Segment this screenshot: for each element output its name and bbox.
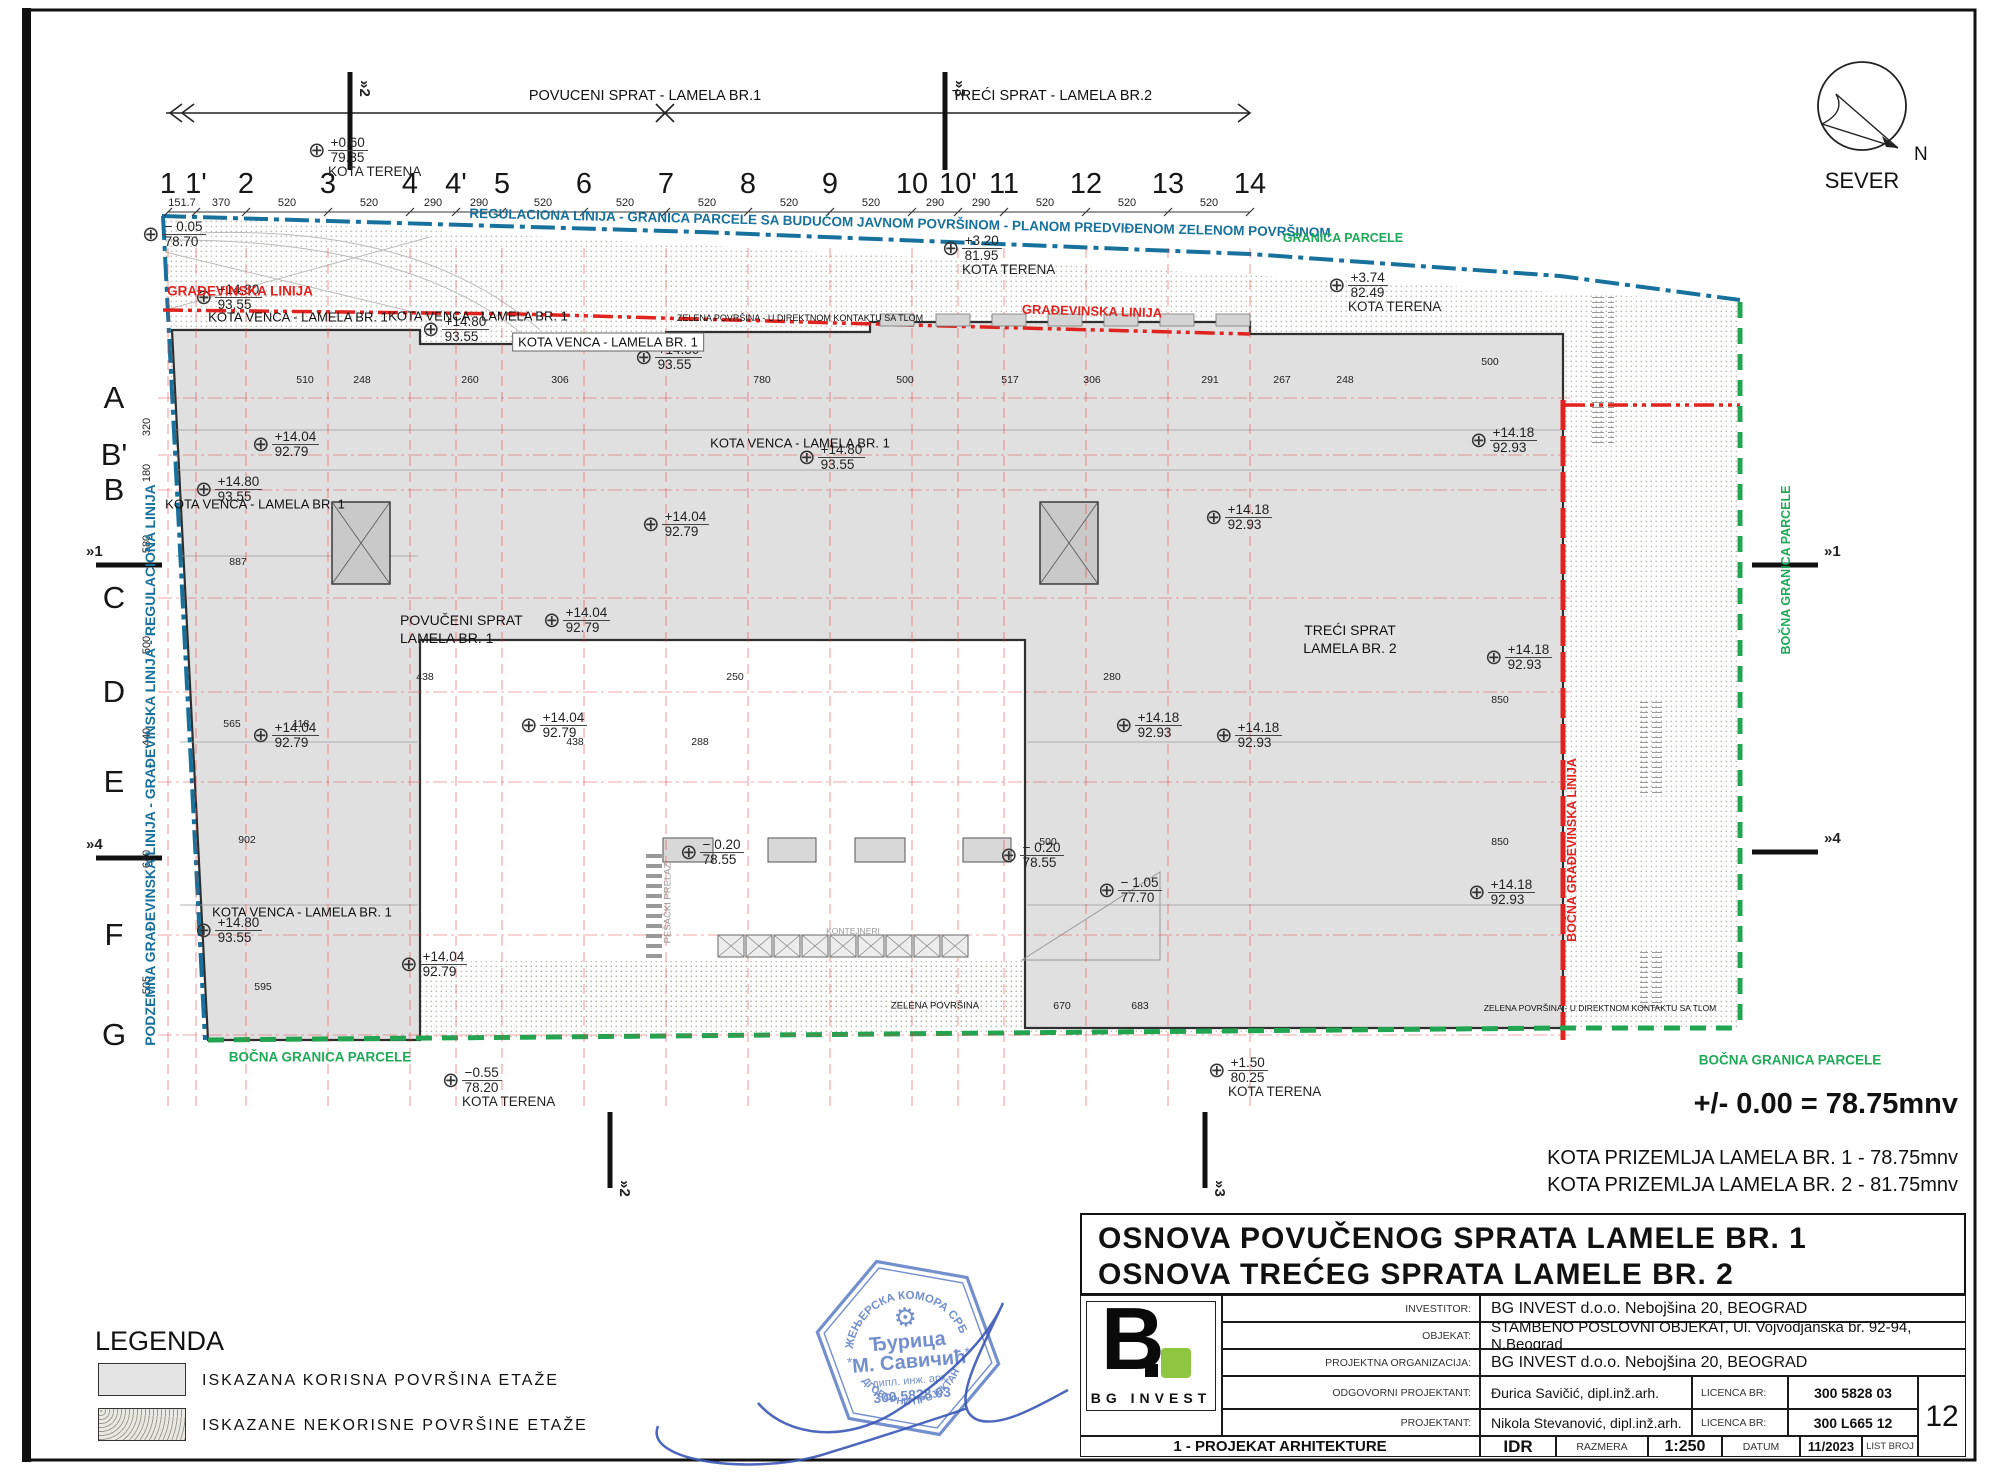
elevation-marker: ⊕+1.5080.25KOTA TERENA	[1208, 1056, 1321, 1099]
bocna-granica-parcele-bottom-right: BOČNA GRANICA PARCELE	[1699, 1053, 1882, 1068]
elevation-symbol-icon: ⊕	[1468, 883, 1486, 903]
row-label-projektant: PROJEKTANT:	[1222, 1409, 1480, 1436]
zelena-povrsina-kontakt-top: ZELENA POVRŠINA - U DIREKTNOM KONTAKTU S…	[677, 313, 923, 323]
dim-label: 288	[691, 736, 709, 748]
grid-row-dim: 180	[141, 463, 153, 481]
grid-row-letter: F	[105, 917, 124, 953]
grid-row-letter: G	[102, 1017, 126, 1053]
grid-column-number: 13	[1152, 168, 1184, 201]
row-label-odgovorni-projektant: ODGOVORNI PROJEKTANT:	[1222, 1376, 1480, 1409]
dim-label: 438	[416, 671, 434, 683]
grid-column-number: 1'	[185, 168, 207, 201]
zelena-povrsina-label: ZELENA POVRŠINA	[891, 1001, 979, 1012]
section-mark-label: »3	[951, 80, 968, 97]
elevation-symbol-icon: ⊕	[308, 141, 326, 161]
elevation-symbol-icon: ⊕	[1098, 881, 1116, 901]
elevation-symbol-icon: ⊕	[1215, 726, 1233, 746]
bg-invest-logo: B BG INVEST	[1086, 1301, 1216, 1411]
grid-column-dim: 520	[360, 197, 378, 209]
elevation-marker: ⊕+14.0492.79	[252, 430, 319, 459]
elevation-marker: ⊕+14.0492.79	[400, 950, 467, 979]
legend-swatch-nekorisna	[98, 1408, 186, 1441]
dim-label: 683	[1131, 1000, 1149, 1012]
kota-venca-label-2: KOTA VENCA - LAMELA BR. 1	[388, 309, 568, 324]
section-mark-label: »1	[1824, 543, 1841, 560]
grid-column-dim: 520	[278, 197, 296, 209]
grid-column-number: 8	[740, 168, 756, 201]
kota-venca-label-4: KOTA VENCA - LAMELA BR. 1	[710, 436, 890, 451]
bocna-gradjevinska-linija-vert: BOČNA GRAĐEVINSKA LINIJA	[1565, 758, 1579, 942]
razmera-value-cell: 1:250	[1648, 1436, 1722, 1457]
elevation-symbol-icon: ⊕	[642, 515, 660, 535]
section-mark-label: »4	[1824, 830, 1841, 847]
regulaciona-linija-label: REGULACIONA LINIJA - GRANICA PARCELE SA …	[469, 206, 1331, 241]
row-value-projektna-organizacija: BG INVEST d.o.o. Nebojšina 20, BEOGRAD	[1480, 1349, 1966, 1376]
gradjevinska-linija-label-left: GRAĐEVINSKA LINIJA	[167, 284, 313, 299]
elevation-symbol-icon: ⊕	[942, 239, 960, 259]
kota-venca-label-5: KOTA VENCA - LAMELA BR. 1	[165, 497, 345, 512]
licence-label-2: LICENCA BR:	[1692, 1409, 1788, 1436]
elevation-marker: ⊕− 0.0578.70	[142, 220, 206, 249]
grid-column-dim: 520	[698, 197, 716, 209]
elevation-marker: ⊕+0.6079.35KOTA TERENA	[308, 136, 421, 179]
razmera-label-cell: RAZMERA	[1556, 1436, 1648, 1457]
legend-label-korisna: ISKAZANA KORISNA POVRŠINA ETAŽE	[202, 1372, 559, 1390]
dim-label: 850	[1491, 694, 1509, 706]
dim-label: 267	[1273, 374, 1291, 386]
grid-column-dim: 370	[212, 197, 230, 209]
grid-row-letter: B	[104, 472, 125, 508]
top-section-left-label: POVUCENI SPRAT - LAMELA BR.1	[529, 88, 761, 104]
elevation-marker: ⊕− 0.2078.55	[680, 838, 744, 867]
dim-label: 500	[1039, 836, 1057, 848]
elevation-symbol-icon: ⊕	[1470, 431, 1488, 451]
grid-column-number: 10	[896, 168, 928, 201]
logo-green-square	[1161, 1348, 1191, 1378]
grid-row-letter: B'	[101, 437, 128, 473]
dim-label: 517	[1001, 374, 1019, 386]
licence-number-2: 300 L665 12	[1788, 1409, 1918, 1436]
grid-column-number: 12	[1070, 168, 1102, 201]
zelena-povrsina-kontakt-right: ZELENA POVRŠINA - U DIREKTNOM KONTAKTU S…	[1484, 1003, 1717, 1013]
dim-label: 500	[1481, 356, 1499, 368]
elevation-marker: ⊕+14.1892.93	[1115, 711, 1182, 740]
dim-label: 118	[293, 718, 310, 730]
dim-label: 250	[726, 671, 744, 683]
elevation-marker: ⊕+14.8093.55	[195, 916, 262, 945]
elevation-marker: ⊕+14.1892.93	[1485, 643, 1552, 672]
idr-cell: IDR	[1480, 1436, 1556, 1457]
grid-row-letter: C	[103, 580, 125, 616]
elevation-symbol-icon: ⊕	[1328, 276, 1346, 296]
dim-label: 670	[1053, 1000, 1071, 1012]
grid-column-dim: 520	[1118, 197, 1136, 209]
dim-label: 500	[896, 374, 914, 386]
grid-row-letter: E	[104, 764, 125, 800]
section-mark-label: »3	[1211, 1180, 1228, 1197]
dim-label: 306	[1083, 374, 1101, 386]
logo-dot	[1145, 1364, 1158, 1377]
elevation-symbol-icon: ⊕	[1485, 648, 1503, 668]
elevation-symbol-icon: ⊕	[1000, 846, 1018, 866]
elevation-symbol-icon: ⊕	[252, 435, 270, 455]
row-label-objekat: OBJEKAT:	[1222, 1322, 1480, 1349]
povuceni-sprat-label-line1: POVUČENI SPRAT	[400, 612, 523, 628]
grid-column-number: 6	[576, 168, 592, 201]
treci-sprat-label-line1: TREĆI SPRAT	[1304, 622, 1396, 638]
drawing-title-line1: OSNOVA POVUČENOG SPRATA LAMELE BR. 1	[1098, 1221, 1964, 1257]
elevation-symbol-icon: ⊕	[798, 448, 816, 468]
datum-label-cell: DATUM	[1722, 1436, 1800, 1457]
grid-column-number: 7	[658, 168, 674, 201]
dim-label: 510	[296, 374, 314, 386]
grid-column-number: 14	[1234, 168, 1266, 201]
elevation-marker: ⊕+3.2081.95KOTA TERENA	[942, 234, 1055, 277]
grid-row-letter: A	[104, 380, 125, 416]
dim-label: 438	[566, 736, 584, 748]
licence-label-1: LICENCA BR:	[1692, 1376, 1788, 1409]
kota-venca-label-1: KOTA VENCA - LAMELA BR. 1	[208, 310, 388, 325]
dim-label: 291	[1201, 374, 1219, 386]
podzemna-linija-label: PODZEMNA GRAĐEVINSKA LINIJA - GRAĐEVINSK…	[142, 484, 158, 1046]
dim-label: 248	[353, 374, 371, 386]
elevation-marker: ⊕−0.5578.20KOTA TERENA	[442, 1066, 555, 1109]
list-broj-label-cell: LIST BROJ	[1862, 1436, 1918, 1457]
elevation-marker: ⊕+14.1892.93	[1470, 426, 1537, 455]
row-value-objekat: STAMBENO POSLOVNI OBJEKAT, Ul. Vojvodjan…	[1480, 1322, 1966, 1349]
dim-label: 248	[1336, 374, 1354, 386]
elevation-symbol-icon: ⊕	[543, 611, 561, 631]
treci-sprat-label-line2: LAMELA BR. 2	[1303, 640, 1396, 656]
row-label-projektna-organizacija: PROJEKTNA ORGANIZACIJA:	[1222, 1349, 1480, 1376]
grid-column-number: 5	[494, 168, 510, 201]
datum-value-cell: 11/2023	[1800, 1436, 1862, 1457]
discipline-cell: 1 - PROJEKAT ARHITEKTURE	[1080, 1436, 1480, 1457]
grid-column-number: 9	[822, 168, 838, 201]
elevation-marker: ⊕+14.1892.93	[1468, 878, 1535, 907]
drawing-sheet: { "drawing_titles": { "line1": "OSNOVA P…	[0, 0, 2000, 1472]
grid-column-dim: 520	[862, 197, 880, 209]
datum-note: +/- 0.00 = 78.75mnv	[1694, 1088, 1958, 1121]
elevation-symbol-icon: ⊕	[400, 955, 418, 975]
grid-column-number: 11	[989, 168, 1019, 201]
elevation-marker: ⊕+14.0492.79	[543, 606, 610, 635]
elevation-symbol-icon: ⊕	[252, 726, 270, 746]
grid-column-dim: 520	[616, 197, 634, 209]
elevation-marker: ⊕+14.1892.93	[1215, 721, 1282, 750]
section-mark-label: »1	[86, 543, 103, 560]
bocna-granica-parcele-right-vert: BOČNA GRANICA PARCELE	[1779, 486, 1793, 655]
elevation-symbol-icon: ⊕	[442, 1071, 460, 1091]
grid-column-number: 4'	[445, 168, 467, 201]
logo-name: BG INVEST	[1087, 1390, 1215, 1406]
elevation-symbol-icon: ⊕	[1205, 508, 1223, 528]
legend-label-nekorisna: ISKAZANE NEKORISNE POVRŠINE ETAŽE	[202, 1417, 588, 1435]
gradjevinska-linija-label-right: GRAĐEVINSKA LINIJA	[1022, 302, 1163, 321]
row-value-odgovorni-projektant: Đurica Savičić, dipl.inž.arh.	[1480, 1376, 1692, 1409]
drawing-title-line2: OSNOVA TREĆEG SPRATA LAMELE BR. 2	[1098, 1257, 1964, 1293]
granica-parcele-label: GRANICA PARCELE	[1283, 231, 1403, 245]
row-value-projektant: Nikola Stevanović, dipl.inž.arh.	[1480, 1409, 1692, 1436]
drawing-title-box: OSNOVA POVUČENOG SPRATA LAMELE BR. 1 OSN…	[1080, 1213, 1966, 1295]
povuceni-sprat-label-line2: LAMELA BR. 1	[400, 630, 493, 646]
dim-label: 565	[223, 718, 241, 730]
grid-row-letter: D	[103, 674, 125, 710]
dim-label: 850	[1491, 836, 1509, 848]
sheet-number: 12	[1918, 1376, 1966, 1457]
legend-title: LEGENDA	[95, 1326, 224, 1357]
dim-label: 902	[238, 834, 256, 846]
pesacki-prelaz-label: PEŠAČKI PRELAZ	[663, 863, 674, 944]
dim-label: 260	[461, 374, 479, 386]
elevation-marker: ⊕+3.7482.49KOTA TERENA	[1328, 271, 1441, 314]
licence-number-1: 300 5828 03	[1788, 1376, 1918, 1409]
grid-column-dim: 520	[1036, 197, 1054, 209]
kota-prizemlja-2-note: KOTA PRIZEMLJA LAMELA BR. 2 - 81.75mnv	[1547, 1174, 1958, 1197]
elevation-symbol-icon: ⊕	[142, 225, 160, 245]
row-label-investitor: INVESTITOR:	[1222, 1295, 1480, 1322]
bocna-granica-parcele-bottom-left: BOČNA GRANICA PARCELE	[229, 1050, 412, 1065]
section-mark-label: »4	[86, 836, 103, 853]
kota-venca-label-6: KOTA VENCA - LAMELA BR. 1	[212, 905, 392, 920]
legend-swatch-korisna	[98, 1363, 186, 1396]
kota-venca-label-3: KOTA VENCA - LAMELA BR. 1	[512, 333, 704, 352]
section-mark-label: »2	[356, 80, 373, 97]
grid-column-dim: 520	[1200, 197, 1218, 209]
elevation-symbol-icon: ⊕	[195, 921, 213, 941]
top-section-right-label: TREĆI SPRAT - LAMELA BR.2	[952, 88, 1152, 104]
elevation-symbol-icon: ⊕	[1208, 1061, 1226, 1081]
elevation-symbol-icon: ⊕	[1115, 716, 1133, 736]
elevation-marker: ⊕− 1.0577.70	[1098, 876, 1162, 905]
kontejneri-label: KONTEJNERI	[826, 926, 880, 936]
grid-column-dim: 290	[424, 197, 442, 209]
kota-prizemlja-1-note: KOTA PRIZEMLJA LAMELA BR. 1 - 78.75mnv	[1547, 1147, 1958, 1170]
section-mark-label: »2	[616, 1180, 633, 1197]
elevation-marker: ⊕+14.1892.93	[1205, 503, 1272, 532]
dim-label: 306	[551, 374, 569, 386]
grid-column-dim: 520	[780, 197, 798, 209]
elevation-symbol-icon: ⊕	[680, 843, 698, 863]
grid-column-number: 2	[238, 168, 254, 201]
dim-label: 887	[229, 556, 247, 568]
dim-label: 780	[753, 374, 771, 386]
elevation-marker: ⊕+14.0492.79	[642, 510, 709, 539]
grid-row-dim: 320	[141, 417, 153, 435]
dim-label: 280	[1103, 671, 1121, 683]
grid-column-dim: 290	[972, 197, 990, 209]
elevation-symbol-icon: ⊕	[520, 716, 538, 736]
dim-label: 595	[254, 981, 272, 993]
